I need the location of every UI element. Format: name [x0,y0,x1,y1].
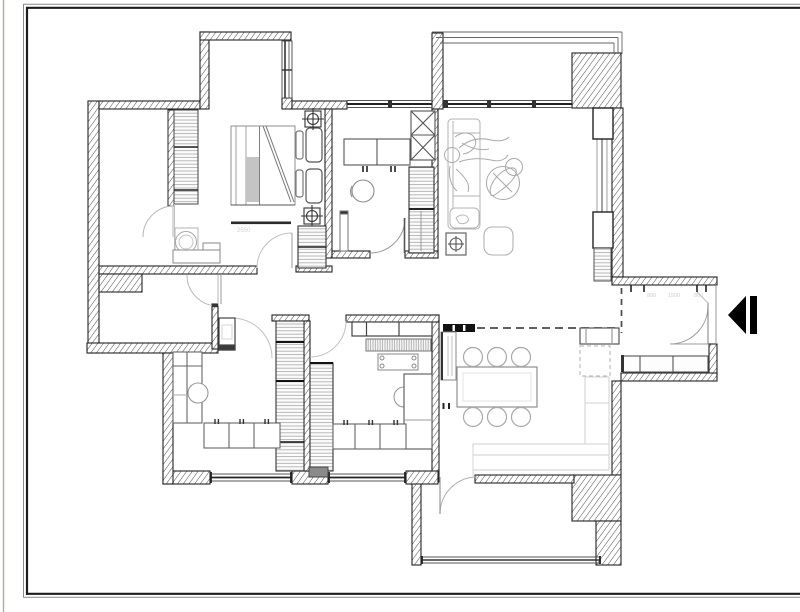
svg-text:2550: 2550 [237,228,251,234]
svg-text:1500: 1500 [668,293,680,299]
svg-text:800: 800 [647,293,656,299]
svg-text:800: 800 [694,293,703,299]
